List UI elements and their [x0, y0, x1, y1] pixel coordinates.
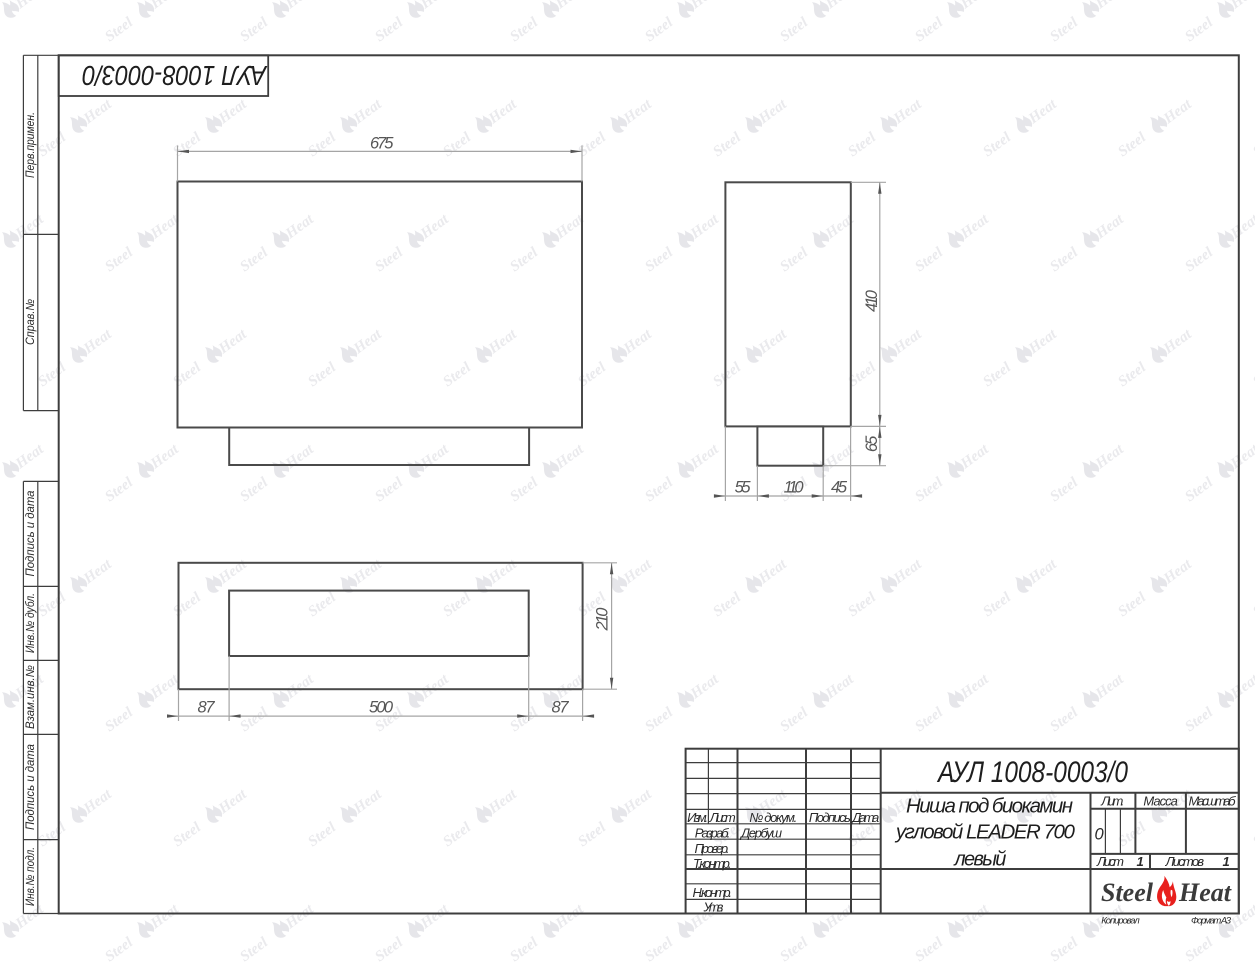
svg-text:Листов: Листов: [1165, 854, 1205, 869]
svg-text:Подпись и дата: Подпись и дата: [23, 744, 37, 830]
svg-text:0: 0: [1095, 826, 1105, 844]
svg-text:210: 210: [593, 607, 611, 632]
svg-text:Провер.: Провер.: [695, 841, 730, 856]
svg-text:65: 65: [863, 435, 881, 452]
svg-text:Изм.: Изм.: [687, 810, 708, 825]
svg-text:Heat: Heat: [1178, 878, 1232, 907]
svg-text:№ докум.: № докум.: [749, 810, 797, 825]
svg-text:Ниша под биокамин: Ниша под биокамин: [906, 795, 1073, 818]
svg-text:87: 87: [198, 699, 216, 717]
svg-text:110: 110: [784, 479, 805, 497]
svg-text:Масштаб: Масштаб: [1189, 794, 1237, 809]
svg-text:Дербуш: Дербуш: [739, 826, 782, 841]
svg-text:Утв.: Утв.: [703, 900, 725, 915]
svg-text:410: 410: [863, 289, 881, 312]
svg-text:Копировал: Копировал: [1101, 916, 1140, 927]
svg-text:87: 87: [552, 699, 570, 717]
svg-text:Дата: Дата: [850, 810, 879, 825]
svg-text:Инв.№ дубл.: Инв.№ дубл.: [23, 593, 37, 653]
svg-text:Подпись: Подпись: [809, 810, 851, 825]
svg-text:Steel: Steel: [1101, 878, 1154, 907]
svg-text:Лит.: Лит.: [1100, 794, 1124, 809]
svg-text:АУЛ 1008-0003/0: АУЛ 1008-0003/0: [936, 756, 1128, 789]
svg-text:Взам.инв.№: Взам.инв.№: [23, 665, 37, 729]
svg-text:1: 1: [1137, 854, 1144, 869]
svg-text:Подпись и дата: Подпись и дата: [23, 490, 37, 576]
svg-text:Масса: Масса: [1143, 794, 1178, 809]
svg-text:Формат А3: Формат А3: [1191, 916, 1232, 927]
svg-text:1: 1: [1223, 854, 1230, 869]
svg-text:55: 55: [735, 479, 752, 497]
svg-text:левый: левый: [953, 849, 1006, 871]
svg-text:Разраб.: Разраб.: [695, 826, 731, 841]
svg-text:Перв.примен.: Перв.примен.: [23, 112, 37, 178]
svg-text:Н.контр.: Н.контр.: [693, 885, 733, 900]
svg-text:Лист: Лист: [1096, 854, 1124, 869]
svg-text:Справ.№: Справ.№: [23, 299, 37, 345]
svg-text:Т.контр.: Т.контр.: [693, 856, 732, 871]
svg-text:500: 500: [369, 699, 394, 717]
svg-text:Инв.№ подл.: Инв.№ подл.: [23, 847, 37, 906]
svg-text:45: 45: [831, 479, 848, 497]
svg-text:675: 675: [370, 134, 394, 152]
svg-text:угловой LEADER 700: угловой LEADER 700: [894, 821, 1076, 844]
svg-text:Лист: Лист: [709, 810, 736, 825]
svg-text:АУЛ 1008-0003/0: АУЛ 1008-0003/0: [82, 60, 268, 91]
